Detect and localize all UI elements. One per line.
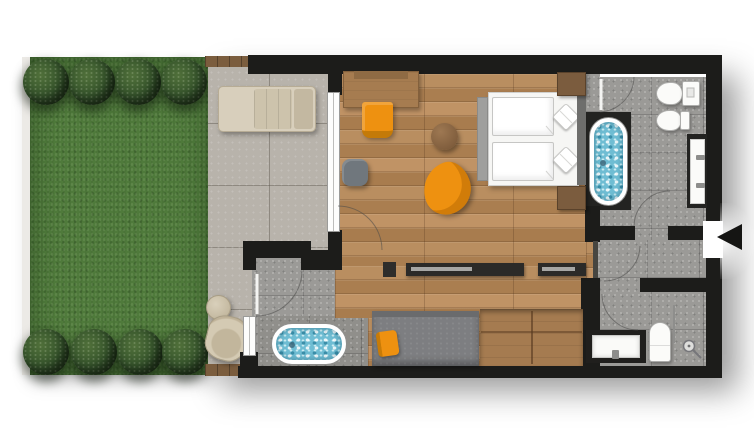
hedge-bush bbox=[23, 59, 69, 105]
coffee-table bbox=[431, 123, 458, 150]
wardrobe-bench-seam bbox=[481, 331, 582, 333]
bed-bench bbox=[477, 97, 488, 181]
wardrobe-bench-seam bbox=[531, 311, 533, 364]
wall-corridor-bathroom bbox=[581, 278, 600, 378]
floor-plan bbox=[0, 0, 754, 435]
toilet-bowl bbox=[656, 82, 683, 105]
entrance-arrow-icon bbox=[717, 224, 742, 250]
wall-bathtub-room-step bbox=[301, 250, 342, 270]
daybed-cushion bbox=[375, 330, 399, 358]
duvet bbox=[492, 142, 554, 181]
hedge-bush bbox=[69, 59, 115, 105]
bidet-back bbox=[680, 111, 690, 130]
nightstand bbox=[557, 72, 586, 96]
hedge-bush bbox=[71, 329, 117, 375]
bidet bbox=[656, 110, 682, 131]
bathtub-room-window bbox=[243, 316, 256, 356]
media-wall-block bbox=[383, 262, 396, 277]
double-vanity bbox=[690, 139, 705, 204]
hedge-bush bbox=[161, 59, 207, 105]
wall-right-upper bbox=[706, 55, 722, 221]
hedge-bush bbox=[23, 329, 69, 375]
terrace-sliding-door bbox=[327, 92, 340, 232]
toilet-cistern bbox=[682, 81, 700, 106]
wall-bottom bbox=[238, 366, 722, 378]
desk-chair bbox=[362, 102, 393, 138]
tv-screen bbox=[542, 267, 575, 271]
tv-screen bbox=[411, 267, 472, 271]
main-bathroom-door-opening bbox=[585, 74, 600, 114]
wall-hall-shower-bathroom bbox=[640, 278, 706, 292]
sun-lounger-backrest bbox=[254, 89, 292, 129]
hedge-bush bbox=[115, 59, 161, 105]
built-in-bathtub bbox=[590, 118, 627, 205]
wall-bathroom-hall-left bbox=[585, 226, 635, 240]
wall-top bbox=[248, 55, 722, 74]
nightstand bbox=[557, 186, 586, 210]
headboard bbox=[577, 93, 586, 185]
shower-partition bbox=[673, 305, 675, 343]
floor-threshold bbox=[593, 241, 598, 278]
wall-window-stub bbox=[243, 256, 256, 270]
single-vanity bbox=[592, 335, 640, 358]
sun-lounger-headrest bbox=[294, 89, 313, 129]
hedge-bush bbox=[162, 329, 208, 375]
desk-shelf bbox=[354, 71, 408, 79]
freestanding-bathtub bbox=[272, 324, 346, 364]
duvet bbox=[492, 97, 554, 136]
terrace-wood-edge-top bbox=[205, 56, 253, 67]
hedge-bush bbox=[117, 329, 163, 375]
toilet bbox=[649, 322, 671, 362]
ottoman bbox=[342, 159, 368, 186]
